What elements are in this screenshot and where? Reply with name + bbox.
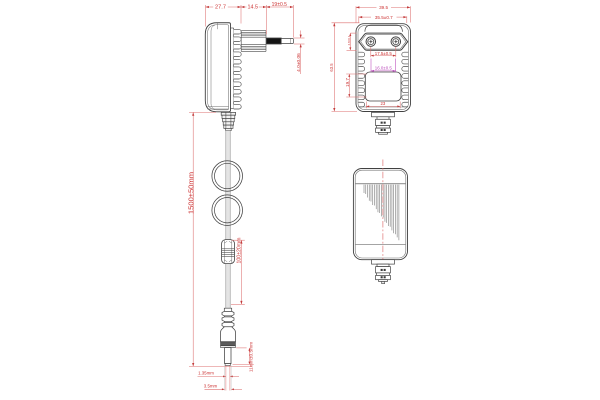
svg-text:1500±50mm: 1500±50mm [187, 172, 196, 214]
svg-text:4.8±0.1: 4.8±0.1 [347, 35, 351, 45]
svg-text:4.0±0.06: 4.0±0.06 [296, 53, 302, 72]
svg-text:19.7: 19.7 [345, 78, 350, 87]
svg-text:14.5: 14.5 [248, 4, 259, 10]
svg-text:17.5±0.5: 17.5±0.5 [375, 51, 393, 56]
svg-text:19±0.5: 19±0.5 [272, 2, 287, 8]
svg-text:100±20mm: 100±20mm [236, 238, 242, 264]
svg-text:35.5±0.7: 35.5±0.7 [375, 15, 393, 20]
svg-text:27.7: 27.7 [215, 5, 226, 11]
svg-text:3.5mm: 3.5mm [204, 384, 218, 389]
svg-text:11mm±0.5mm: 11mm±0.5mm [248, 342, 254, 372]
svg-text:39.5: 39.5 [379, 5, 388, 10]
svg-text:23: 23 [381, 101, 386, 106]
svg-text:1.35mm: 1.35mm [198, 371, 214, 376]
svg-text:63.5: 63.5 [329, 63, 334, 72]
svg-text:16.0±0.5: 16.0±0.5 [375, 66, 393, 71]
